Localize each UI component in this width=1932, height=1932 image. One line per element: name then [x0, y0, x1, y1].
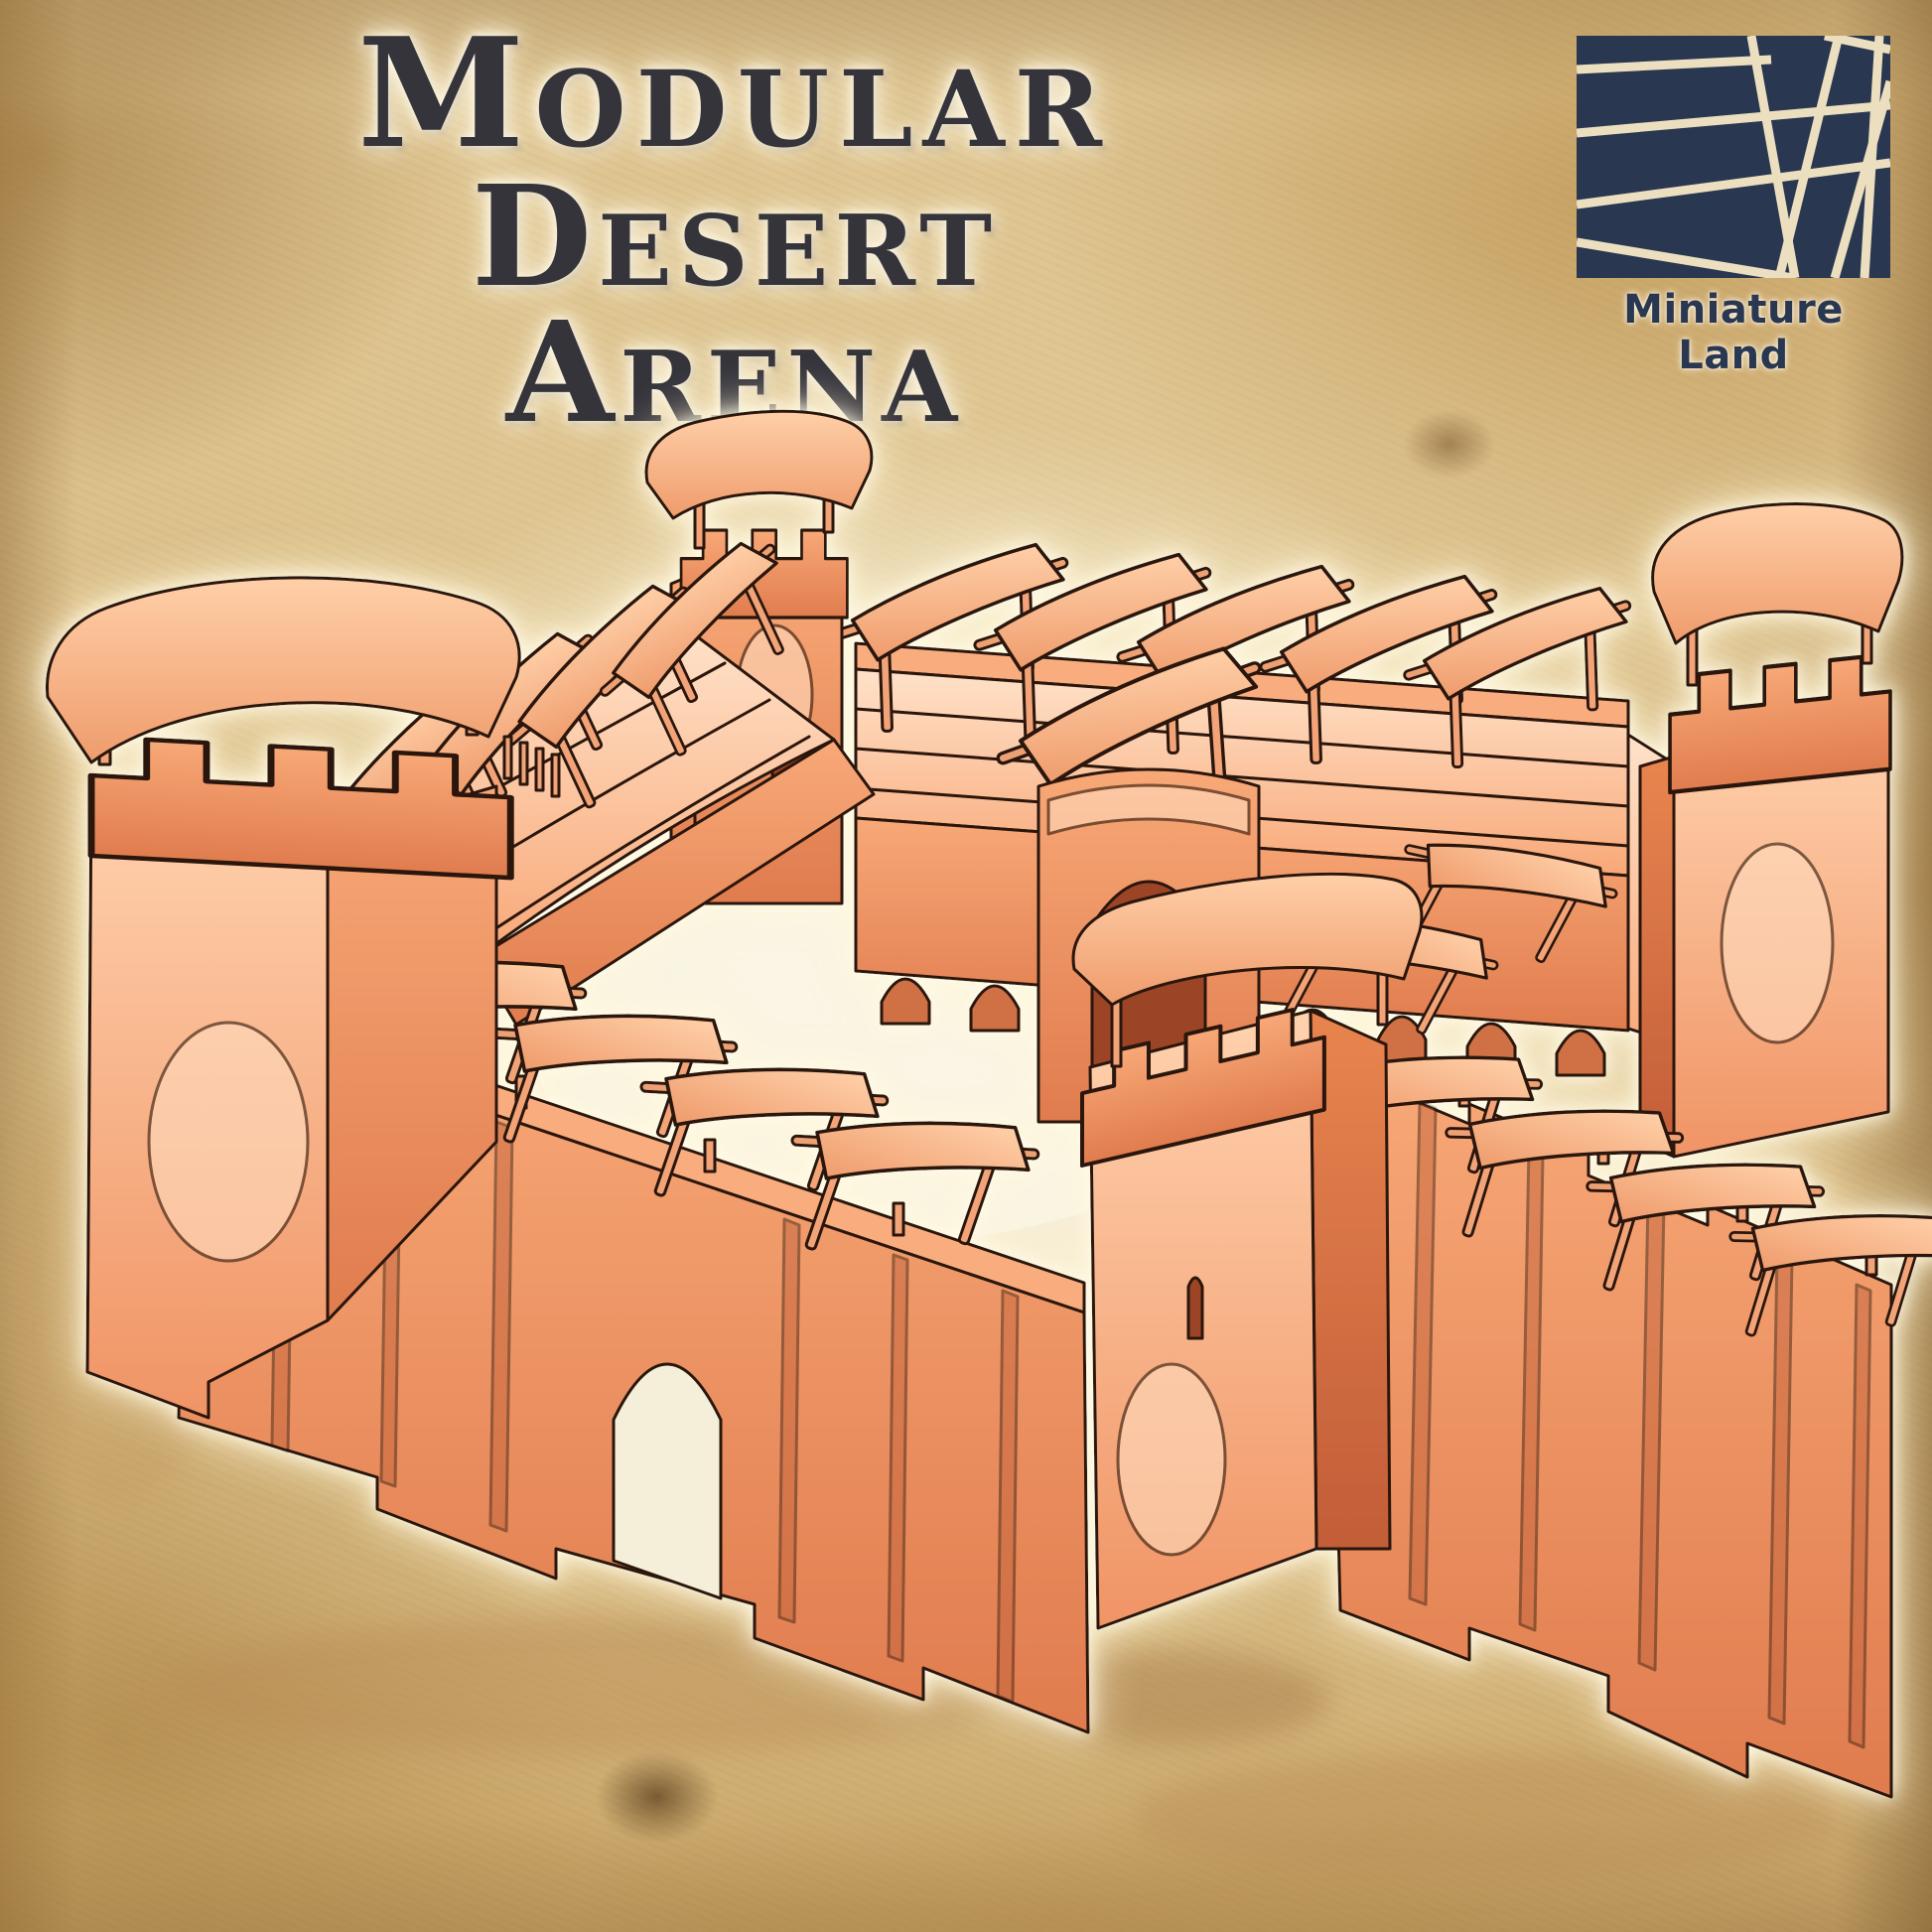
- arena-render: [0, 0, 1932, 1932]
- tower-canopy: [1653, 504, 1902, 643]
- right-watchtower: [1640, 504, 1902, 1157]
- tower-canopy: [646, 411, 872, 518]
- arena-gate-arch: [614, 1364, 721, 1598]
